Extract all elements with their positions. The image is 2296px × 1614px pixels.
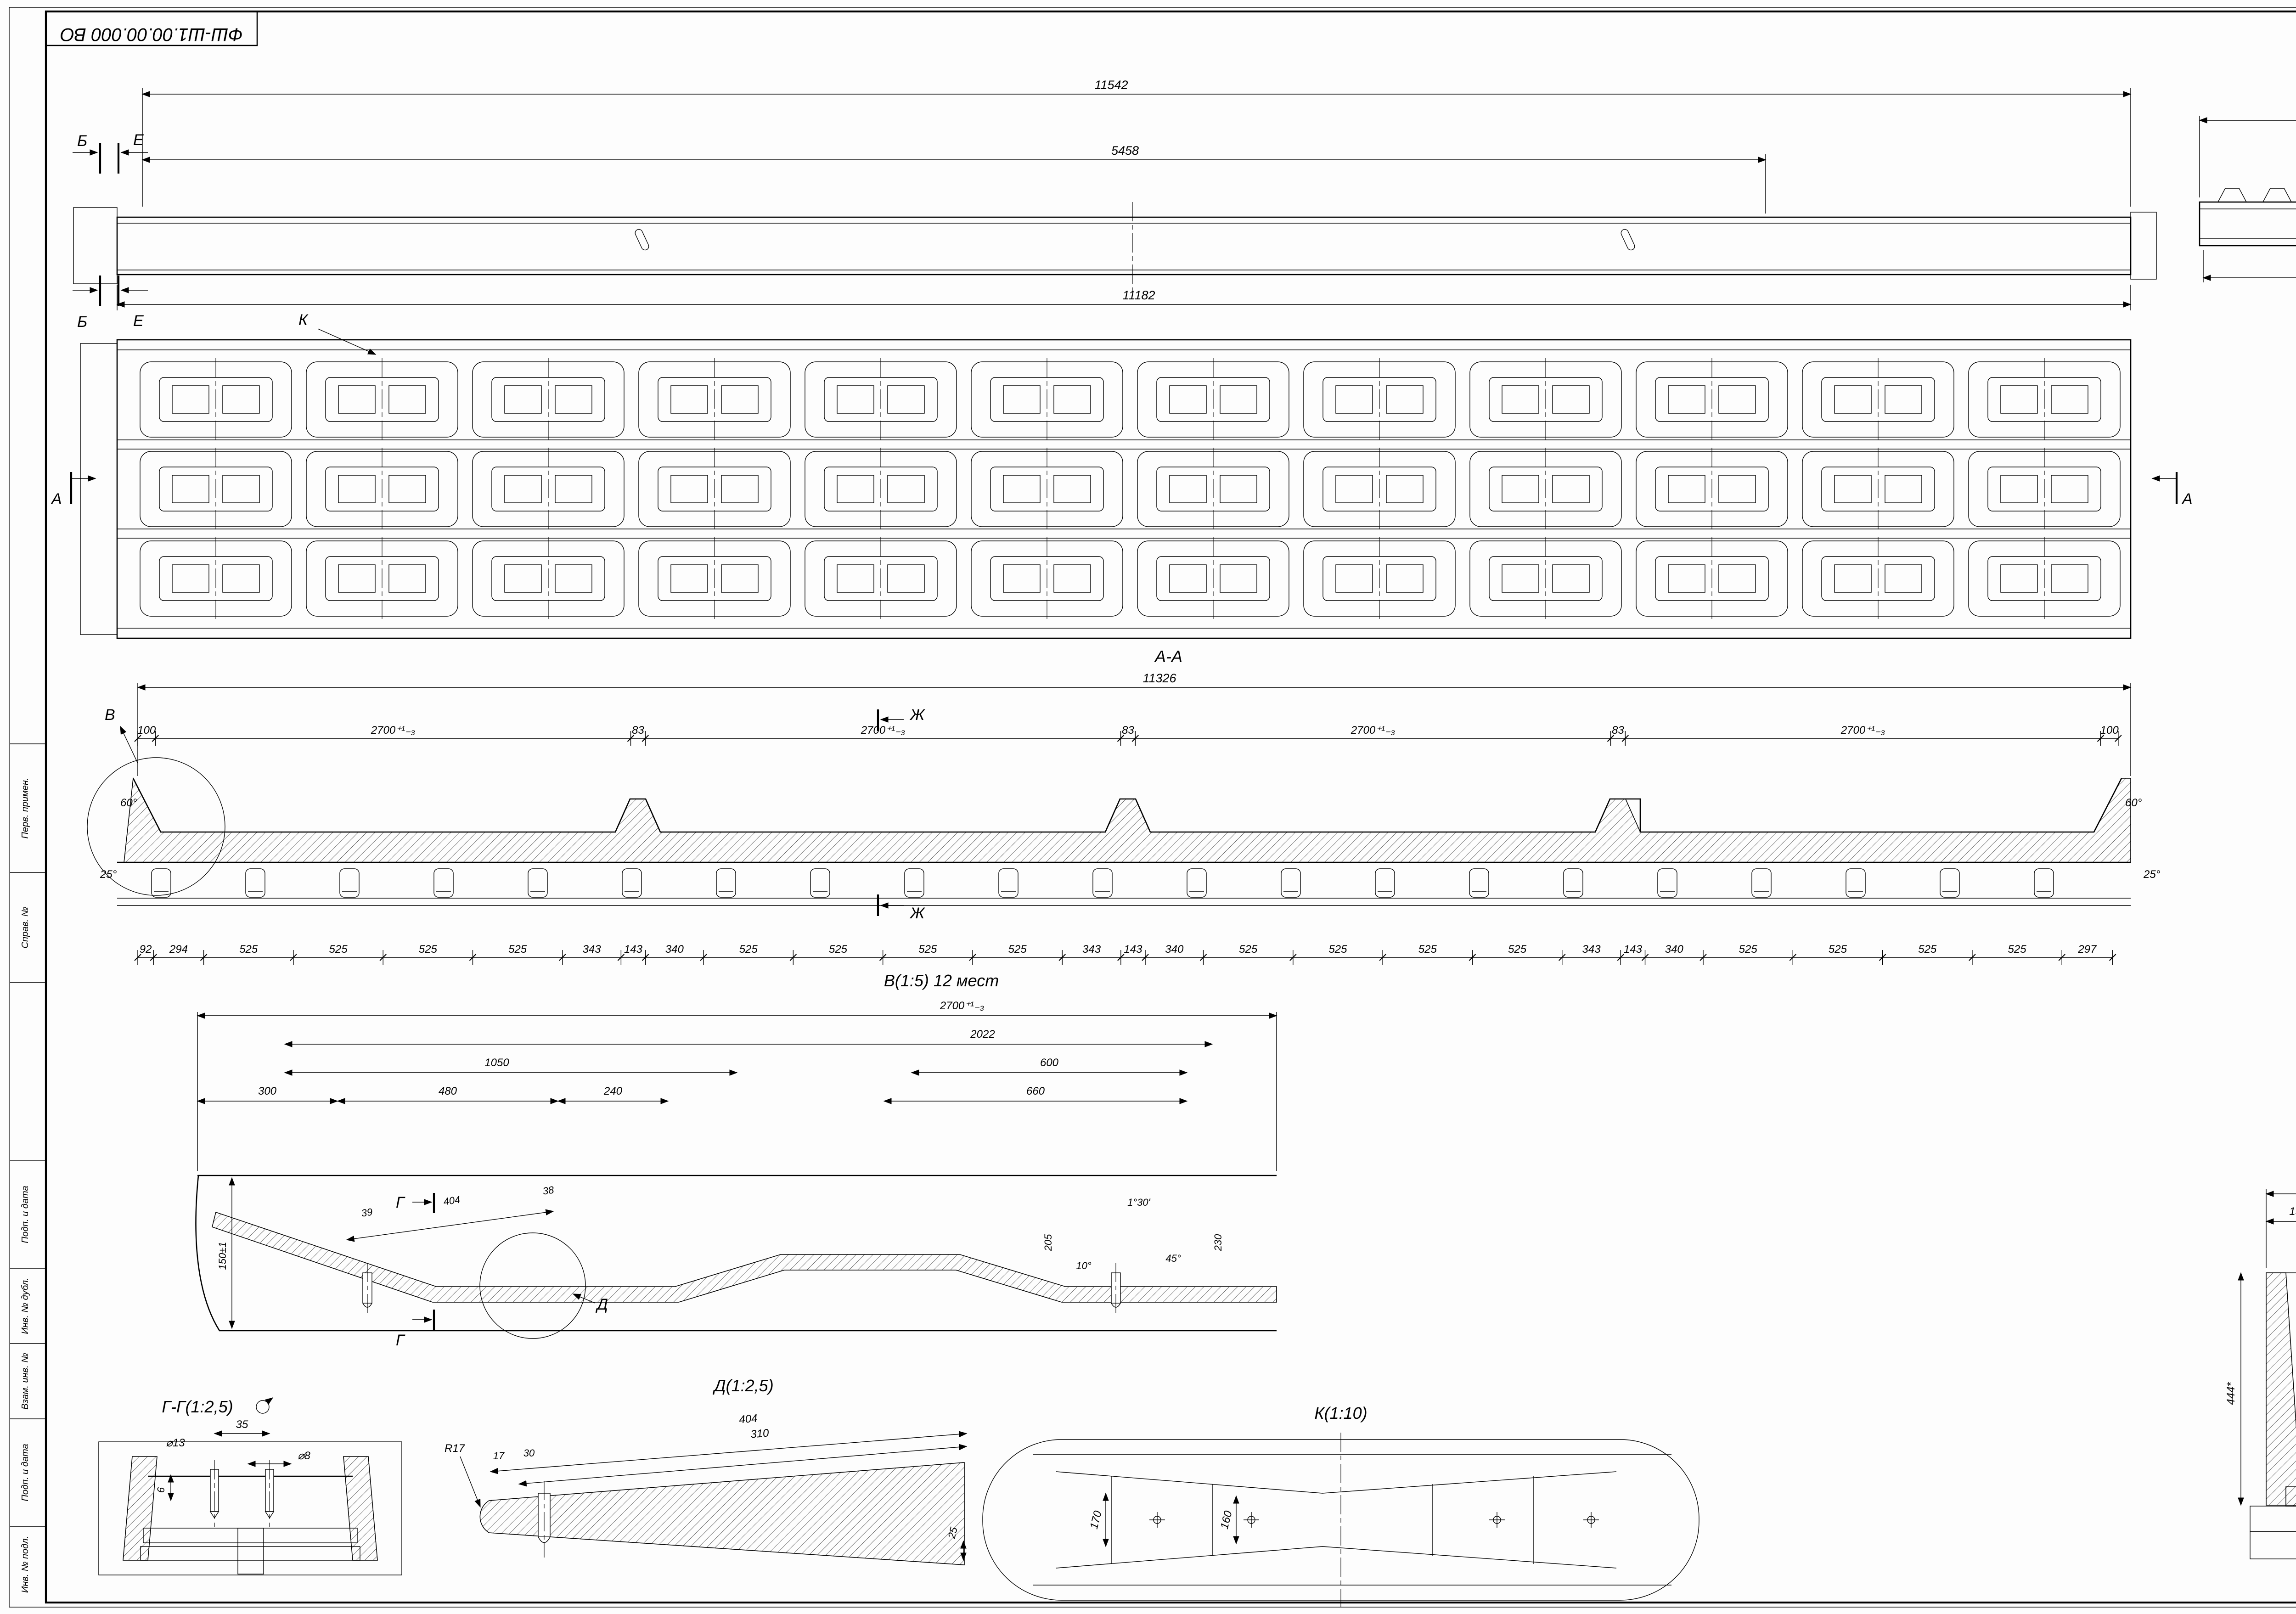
- aa-angle-25-left: 25°: [100, 868, 117, 881]
- section-aa: А-А 11326 1002700⁺¹₋₃832700⁺¹₋₃832700⁺¹₋…: [87, 647, 2161, 965]
- chain-dim-label: 525: [1508, 943, 1527, 956]
- dd-bolt: [538, 1481, 550, 1558]
- svg-text:К: К: [298, 311, 309, 329]
- aa-dim-11326: 11326: [1142, 671, 1176, 685]
- svg-text:Б: Б: [77, 313, 87, 331]
- v-dim-1050: 1050: [484, 1057, 509, 1069]
- detail-kk-title: К(1:10): [1314, 1404, 1367, 1423]
- svg-text:Д: Д: [595, 1296, 608, 1313]
- end-view: 1592 1576: [2200, 104, 2296, 300]
- chain-dim-label: 100: [2100, 724, 2119, 737]
- chain-dim-label: 525: [1418, 943, 1437, 956]
- dd-r17: R17: [445, 1442, 466, 1455]
- aa-angle-60-left: 60°: [120, 797, 137, 809]
- front-dim-11182: 11182: [1122, 288, 1155, 302]
- detail-dd-title: Д(1:2,5): [712, 1376, 773, 1395]
- chain-dim-label: 525: [1239, 943, 1258, 956]
- section-mark-zh-bottom: Ж: [878, 894, 925, 922]
- aa-top-dim-chain: 1002700⁺¹₋₃832700⁺¹₋₃832700⁺¹₋₃832700⁺¹₋…: [135, 724, 2122, 746]
- section-mark-g-top: Г: [396, 1193, 434, 1213]
- v-dim-404: 404: [443, 1194, 461, 1208]
- svg-text:Г: Г: [396, 1194, 405, 1211]
- gg-dim-d13: ⌀13: [166, 1437, 185, 1449]
- v-angle-130: 1°30': [1127, 1197, 1151, 1208]
- v-dim-660: 660: [1026, 1085, 1045, 1097]
- detail-gg-title: Г-Г(1:2,5): [162, 1397, 233, 1416]
- svg-text:Ж: Ж: [909, 706, 925, 724]
- v-dim-230: 230: [1212, 1234, 1224, 1251]
- front-view: 11542 5458 11182 Б Е Б Е: [73, 78, 2156, 331]
- side-label-podp-data-1: Подп. и дата: [20, 1186, 30, 1243]
- view-v-title: В(1:5) 12 мест: [884, 971, 999, 990]
- dd-dim-404: 404: [738, 1412, 758, 1426]
- dd-dim-310: 310: [750, 1427, 770, 1440]
- gg-dim-35: 35: [236, 1418, 248, 1431]
- v-angle-45: 45°: [1165, 1253, 1181, 1264]
- section-mark-e-bottom: Е: [118, 276, 148, 330]
- aa-angle-60-right: 60°: [2125, 797, 2142, 809]
- chain-dim-label: 525: [829, 943, 848, 956]
- chain-dim-label: 100: [137, 724, 156, 737]
- section-mark-a-right: А: [2152, 472, 2193, 508]
- svg-text:А: А: [2181, 490, 2193, 508]
- svg-text:Е: Е: [133, 312, 144, 330]
- chain-dim-label: 525: [1008, 943, 1027, 956]
- chain-dim-label: 525: [419, 943, 438, 956]
- front-dim-5458: 5458: [1111, 144, 1139, 157]
- chain-dim-label: 525: [1739, 943, 1758, 956]
- chain-dim-label: 2700⁺¹₋₃: [1840, 724, 1885, 737]
- ee-dim-154: 154*: [2289, 1205, 2296, 1218]
- side-strip: Перв. примен. Справ. № Подп. и дата Инв.…: [10, 744, 46, 1593]
- view-v: В(1:5) 12 мест 2700⁺¹₋₃ 2022 1050 600 66…: [196, 971, 1277, 1349]
- drawing-canvas: ФШ-Ш1.00.00.000 ВО Перв. примен. Справ. …: [0, 0, 2296, 1614]
- sheet-frame: ФШ-Ш1.00.00.000 ВО Перв. примен. Справ. …: [9, 7, 2296, 1607]
- gg-dim-6: 6: [155, 1487, 167, 1493]
- chain-dim-label: 143: [624, 943, 643, 956]
- chain-dim-label: 340: [1165, 943, 1184, 956]
- kk-dim-160: 160: [1218, 1509, 1235, 1530]
- v-dim-600: 600: [1040, 1057, 1059, 1069]
- chain-dim-label: 92: [140, 943, 152, 956]
- section-aa-title: А-А: [1154, 647, 1182, 666]
- chain-dim-label: 83: [1122, 724, 1134, 737]
- front-dim-11542: 11542: [1094, 78, 1128, 92]
- v-dim-240: 240: [603, 1085, 623, 1097]
- chain-dim-label: 340: [665, 943, 684, 956]
- chain-dim-label: 343: [1582, 943, 1601, 956]
- gg-bolt-right: [265, 1460, 274, 1527]
- section-mark-g-bottom: Г: [396, 1310, 434, 1349]
- callout-k: К: [298, 311, 376, 354]
- plan-view: К А А: [51, 311, 2193, 638]
- detail-kk: К(1:10) 170 160 25: [945, 1404, 1699, 1607]
- side-label-perv-primen: Перв. примен.: [20, 778, 30, 839]
- v-bolt-right: [1111, 1263, 1120, 1314]
- chain-dim-label: 143: [1124, 943, 1142, 956]
- svg-text:Б: Б: [77, 132, 87, 150]
- v-dim-150: 150±1: [217, 1242, 228, 1270]
- side-label-vzam-inv: Взам. инв. №: [20, 1353, 30, 1410]
- chain-dim-label: 525: [1328, 943, 1347, 956]
- rotated-icon: [256, 1398, 273, 1413]
- chain-dim-label: 525: [1829, 943, 1847, 956]
- callout-v: В: [87, 706, 225, 895]
- svg-text:В: В: [105, 706, 115, 724]
- section-mark-b-top: Б: [73, 132, 100, 174]
- side-label-inv-dubl: Инв. № дубл.: [20, 1278, 30, 1334]
- svg-text:А: А: [51, 490, 62, 508]
- v-dim-480: 480: [439, 1085, 457, 1097]
- chain-dim-label: 143: [1624, 943, 1643, 956]
- chain-dim-label: 340: [1665, 943, 1684, 956]
- chain-dim-label: 83: [632, 724, 644, 737]
- chain-dim-label: 343: [583, 943, 602, 956]
- corner-stamp-doc-number: ФШ-Ш1.00.00.000 ВО: [60, 24, 243, 45]
- chain-dim-label: 2700⁺¹₋₃: [371, 724, 415, 737]
- chain-dim-label: 525: [739, 943, 758, 956]
- drawing-sheet: ФШ-Ш1.00.00.000 ВО Перв. примен. Справ. …: [0, 0, 2296, 1614]
- ee-dim-444: 444*: [2225, 1382, 2237, 1405]
- chain-dim-label: 525: [239, 943, 258, 956]
- v-dim-38: 38: [542, 1184, 555, 1197]
- chain-dim-label: 2700⁺¹₋₃: [861, 724, 905, 737]
- aa-angle-25-right: 25°: [2143, 868, 2161, 881]
- svg-text:Ж: Ж: [909, 905, 925, 922]
- svg-text:Е: Е: [133, 131, 144, 149]
- callout-d: Д: [480, 1233, 608, 1338]
- chain-dim-label: 525: [508, 943, 527, 956]
- chain-dim-label: 525: [2008, 943, 2027, 956]
- v-dim-39: 39: [360, 1206, 373, 1219]
- detail-gg: Г-Г(1:2,5) 35 ⌀13 ⌀8 6: [99, 1397, 402, 1575]
- side-label-inv-podl: Инв. № подл.: [20, 1536, 30, 1593]
- detail-dd: Д(1:2,5) R17 404 310 17 30: [445, 1376, 967, 1565]
- chain-dim-label: 83: [1612, 724, 1624, 737]
- side-label-podp-data-2: Подп. и дата: [20, 1444, 30, 1501]
- chain-dim-label: 297: [2077, 943, 2097, 956]
- v-angle-10: 10°: [1076, 1260, 1091, 1271]
- chain-dim-label: 525: [329, 943, 348, 956]
- side-label-sprav-no: Справ. №: [20, 907, 30, 949]
- chain-dim-label: 525: [918, 943, 937, 956]
- chain-dim-label: 525: [1918, 943, 1937, 956]
- gg-dim-d8: ⌀8: [298, 1450, 310, 1462]
- dd-dim-30: 30: [523, 1447, 535, 1459]
- svg-text:Г: Г: [396, 1332, 405, 1349]
- v-dim-300: 300: [258, 1085, 277, 1097]
- dd-dim-17: 17: [493, 1450, 505, 1462]
- gg-bolt-left: [210, 1460, 219, 1527]
- chain-dim-label: 2700⁺¹₋₃: [1351, 724, 1395, 737]
- v-dim-2022: 2022: [970, 1028, 995, 1040]
- section-mark-e-top: Е: [118, 131, 148, 174]
- section-ee: Е-Е(1:5) 1576 154* 434 300±1 225±1 150±1…: [2225, 1147, 2296, 1559]
- v-dim-2700: 2700⁺¹₋₃: [940, 1000, 984, 1012]
- aa-bottom-dim-chain: 9229452552552552534314334052552552552534…: [135, 943, 2116, 965]
- chain-dim-label: 294: [169, 943, 188, 956]
- chain-dim-label: 343: [1082, 943, 1101, 956]
- section-mark-a-left: А: [51, 472, 96, 508]
- v-dim-205: 205: [1042, 1234, 1054, 1251]
- kk-dim-170: 170: [1088, 1509, 1104, 1530]
